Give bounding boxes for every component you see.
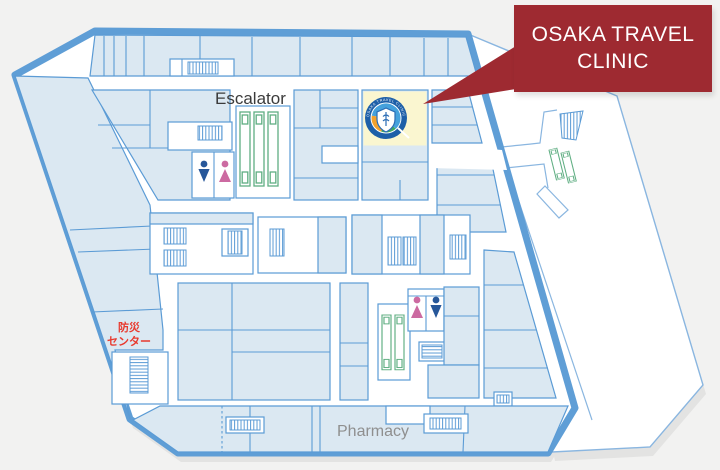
elevator-icon [388,237,401,265]
escalator-icon [382,315,391,370]
stairs-icon [497,395,509,403]
elevator-icon [228,231,242,254]
disaster-center-label-line1: 防災 [97,322,161,336]
escalator-icon [254,112,264,186]
top-stairs-icon [188,62,218,74]
clinic-callout-line1: OSAKA TRAVEL [532,22,695,48]
elevator-icon [164,228,186,244]
left-stairs-icon [130,357,148,393]
elevator-band [150,213,470,274]
clinic-callout-line2: CLINIC [577,49,649,75]
pharmacy-label: Pharmacy [337,423,409,441]
escalator-room-top [236,106,290,198]
disaster-center-label: 防災 センター [97,322,161,350]
disaster-center-label-line2: センター [97,336,161,350]
lower-left-block [178,283,330,400]
top-room-row [90,35,477,76]
clinic-callout: OSAKA TRAVEL CLINIC [514,5,712,92]
escalator-label: Escalator [215,89,286,109]
elevator-icon [164,250,186,266]
escalator-icon [395,315,404,370]
clinic-block: OSAKA TRAVEL CLINIC [362,90,428,200]
elevator-icon [270,229,284,256]
upper-center-block [294,90,358,200]
escalator-icon [268,112,278,186]
escalator-icon [240,112,250,186]
stairs-icon [230,420,260,430]
stairs-icon [198,126,222,140]
floor-map-page: OSAKA TRAVEL CLINIC [0,0,720,470]
elevator-icon [403,237,416,265]
stairs-icon [422,345,442,358]
stairs-icon [430,418,461,429]
elevator-icon [450,235,466,259]
